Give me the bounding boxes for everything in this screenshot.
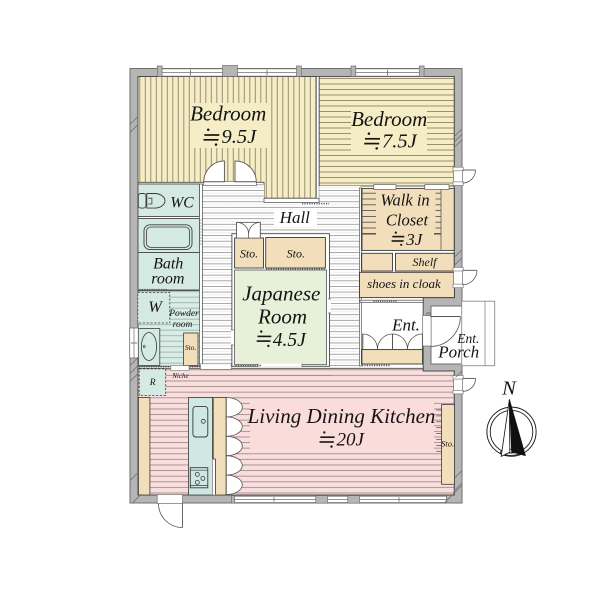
- svg-text:Japanese: Japanese: [242, 281, 320, 305]
- svg-text:Sto.: Sto.: [287, 246, 305, 260]
- svg-text:room: room: [151, 270, 184, 287]
- svg-text:Closet: Closet: [386, 211, 429, 230]
- svg-text:Sto.: Sto.: [185, 343, 197, 352]
- svg-text:W: W: [148, 297, 163, 316]
- svg-text:N: N: [501, 378, 517, 400]
- svg-text:Room: Room: [257, 305, 307, 329]
- svg-text:WC: WC: [170, 195, 194, 212]
- svg-text:Shelf: Shelf: [413, 255, 439, 269]
- svg-text:Bedroom: Bedroom: [351, 107, 427, 131]
- svg-text:shoes in cloak: shoes in cloak: [367, 276, 441, 291]
- svg-text:9.5J: 9.5J: [222, 126, 258, 148]
- svg-text:Porch: Porch: [437, 342, 479, 361]
- svg-text:R: R: [149, 378, 156, 388]
- svg-text:Living Dining Kitchen: Living Dining Kitchen: [247, 404, 436, 428]
- svg-text:room: room: [173, 320, 193, 330]
- svg-text:Ent.: Ent.: [391, 316, 420, 335]
- svg-text:3J: 3J: [405, 230, 424, 249]
- svg-text:Sto.: Sto.: [240, 246, 258, 260]
- svg-text:7.5J: 7.5J: [382, 130, 418, 152]
- svg-text:Hall: Hall: [279, 208, 311, 227]
- svg-text:Niche: Niche: [171, 372, 188, 380]
- svg-text:Sto.: Sto.: [441, 438, 454, 448]
- svg-text:4.5J: 4.5J: [273, 330, 307, 351]
- svg-text:Walk in: Walk in: [380, 191, 429, 210]
- svg-text:Bedroom: Bedroom: [190, 101, 266, 125]
- svg-text:20J: 20J: [337, 429, 366, 450]
- svg-text:Powder: Powder: [168, 309, 199, 319]
